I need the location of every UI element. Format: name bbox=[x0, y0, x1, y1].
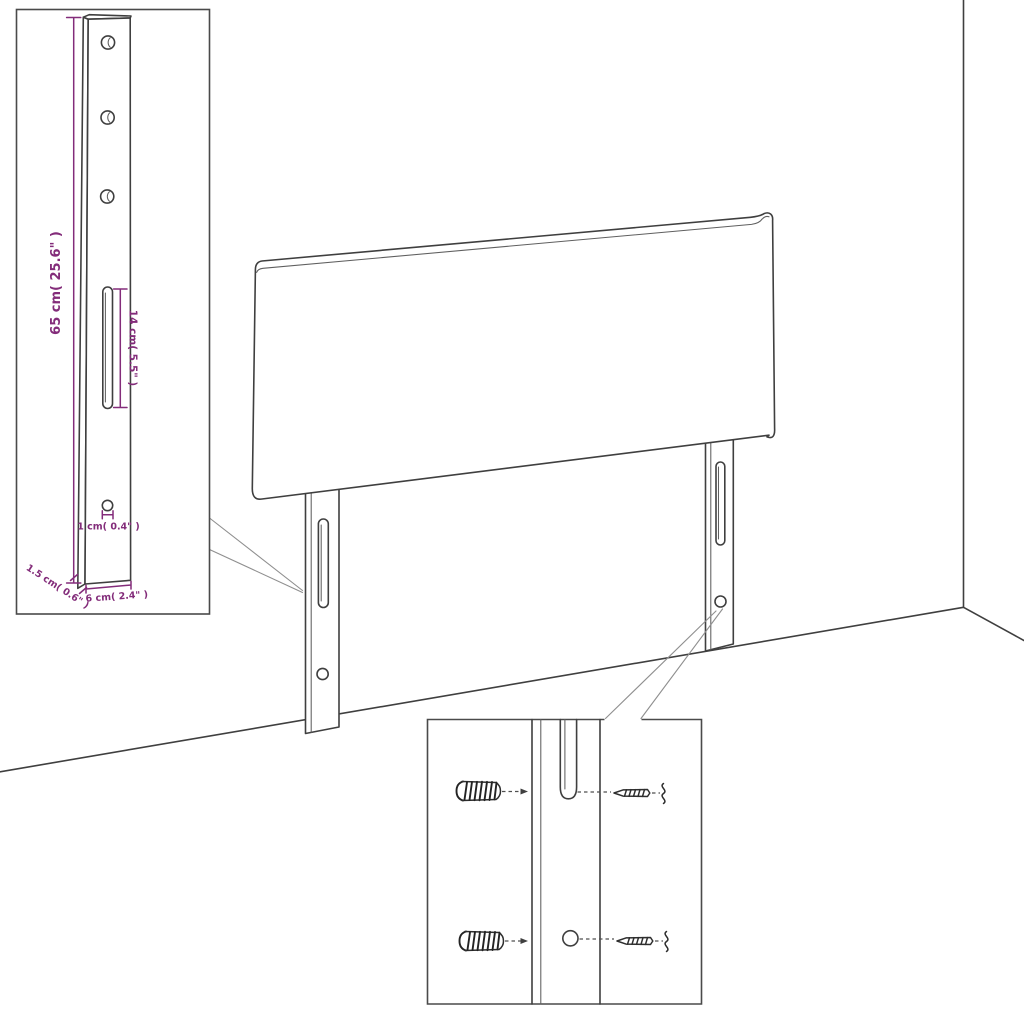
callout-hardware-left bbox=[606, 611, 717, 719]
callout-hardware-right bbox=[641, 609, 723, 719]
leg-right-body bbox=[706, 434, 734, 651]
dim-slot-label: 14 cm( 5.5" ) bbox=[127, 310, 139, 386]
callout-bracket-lower bbox=[210, 550, 303, 593]
callout-bracket-upper bbox=[210, 518, 303, 591]
bracket-front-face bbox=[85, 18, 131, 584]
diagram-canvas: 65 cm( 25.6" ) 14 cm( 5.5" ) 1 cm( 0.4" … bbox=[0, 0, 1024, 1024]
leg-left-body bbox=[306, 483, 340, 734]
floor-line-right bbox=[964, 607, 1024, 640]
panel-face bbox=[252, 213, 774, 499]
inset-bracket-detail: 65 cm( 25.6" ) 14 cm( 5.5" ) 1 cm( 0.4" … bbox=[17, 10, 210, 615]
dim-hole-label: 1 cm( 0.4" ) bbox=[77, 522, 140, 533]
headboard-leg-left bbox=[306, 483, 340, 734]
inset-hardware-detail bbox=[428, 720, 702, 1005]
headboard-panel bbox=[252, 213, 774, 499]
headboard-leg-right bbox=[706, 434, 734, 651]
product-diagram: 65 cm( 25.6" ) 14 cm( 5.5" ) 1 cm( 0.4" … bbox=[0, 0, 1024, 1024]
dim-height-label: 65 cm( 25.6" ) bbox=[49, 231, 64, 335]
callout-lines bbox=[210, 518, 723, 719]
bracket-drawing bbox=[78, 15, 131, 589]
